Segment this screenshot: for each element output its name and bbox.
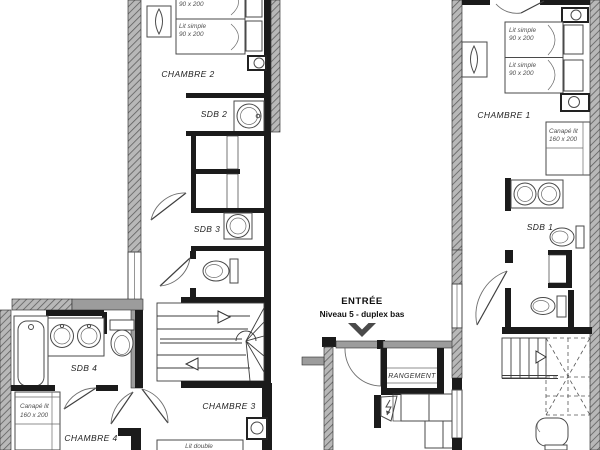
stairs (502, 338, 590, 415)
door (476, 271, 507, 325)
insulated-wall (590, 0, 600, 450)
stair-up-arrow (218, 311, 230, 323)
room-label-sdb2: SDB 2 (201, 109, 228, 119)
insulated-wall (12, 299, 72, 310)
bed-size-label: 90 x 200 (509, 70, 534, 77)
insulated-wall (324, 347, 333, 450)
bed-size-label: 90 x 200 (509, 35, 534, 42)
washbasin (224, 213, 252, 239)
bed-label: Lit double (185, 443, 213, 450)
double-washbasin (48, 318, 104, 356)
room-label-sdb3: SDB 3 (194, 224, 221, 234)
room-label-chambre4: CHAMBRE 4 (64, 433, 117, 443)
door (111, 392, 133, 424)
toilet (203, 259, 238, 283)
kitchen-units (393, 394, 461, 448)
door (142, 389, 168, 423)
bed-size-label: 90 x 200 (179, 31, 204, 38)
room-label-chambre2: CHAMBRE 2 (161, 69, 214, 79)
washbasin (234, 101, 264, 132)
floor-plan-drawing: 90 x 200 Lit simple 90 x 200 CHAMBRE 2 S… (0, 0, 600, 450)
door (151, 193, 186, 220)
sofa-size-label: 160 x 200 (20, 412, 49, 419)
sofa-label: Canapé lit (20, 403, 49, 410)
toilet (531, 296, 566, 317)
wardrobe (462, 42, 487, 77)
electrical-panel (374, 395, 397, 428)
entry-title: ENTRÉE (341, 296, 383, 307)
storage-closet: RANGEMENT (381, 341, 460, 395)
nightstand (247, 418, 267, 439)
bed-label: Lit simple (509, 27, 536, 34)
right-unit: Lit simple 90 x 200 Lit simple 90 x 200 … (452, 0, 600, 450)
wardrobe (147, 6, 171, 37)
insulated-wall (271, 0, 280, 132)
entry-door (345, 348, 381, 386)
bed-label: Lit simple (509, 62, 536, 69)
winder-stairs (157, 303, 264, 381)
twin-beds: Lit simple 90 x 200 Lit simple 90 x 200 (505, 22, 583, 93)
nightstand (248, 56, 266, 70)
kitchen-sink (536, 418, 568, 450)
bathtub (14, 316, 48, 390)
room-label-chambre3: CHAMBRE 3 (202, 401, 255, 411)
sofa-bed: Canapé lit 160 x 200 (546, 122, 590, 175)
stair-arrow (536, 351, 546, 363)
sofa-size-label: 160 x 200 (549, 136, 578, 143)
door (160, 258, 190, 286)
insulated-wall (0, 310, 11, 450)
insulated-wall (452, 0, 462, 250)
nightstand (561, 94, 589, 111)
toilet (550, 226, 584, 248)
entry-subtitle: Niveau 5 - duplex bas (320, 309, 405, 319)
shower-closet (505, 250, 572, 288)
room-label-sdb1: SDB 1 (527, 222, 554, 232)
sofa-label: Canapé lit (549, 128, 578, 135)
double-washbasin (511, 180, 563, 208)
twin-beds: 90 x 200 Lit simple 90 x 200 (176, 0, 262, 54)
wc-room (502, 288, 592, 334)
door (64, 388, 96, 409)
nightstand (562, 8, 588, 22)
wc-room (160, 251, 238, 303)
floor-plan: 90 x 200 Lit simple 90 x 200 CHAMBRE 2 S… (0, 0, 600, 450)
room-label-chambre1: CHAMBRE 1 (477, 110, 530, 120)
entrance-hall: ENTRÉE Niveau 5 - duplex bas RANGEMENT (302, 296, 461, 450)
bed-label: Lit simple (179, 23, 206, 30)
insulated-wall (128, 0, 141, 252)
shower-closets (186, 131, 266, 213)
room-label-sdb4: SDB 4 (71, 363, 98, 373)
sofa-bed: Canapé lit 160 x 200 (15, 392, 60, 450)
double-bed: Lit double (157, 440, 243, 450)
door (496, 1, 544, 13)
room-label-rangement: RANGEMENT (388, 373, 436, 380)
annex: SDB 4 Canapé lit 160 x 200 CHAMBRE 4 (0, 299, 143, 450)
toilet (110, 320, 134, 356)
bed-size-label: 90 x 200 (179, 1, 204, 8)
entry-arrow-icon (348, 323, 376, 337)
